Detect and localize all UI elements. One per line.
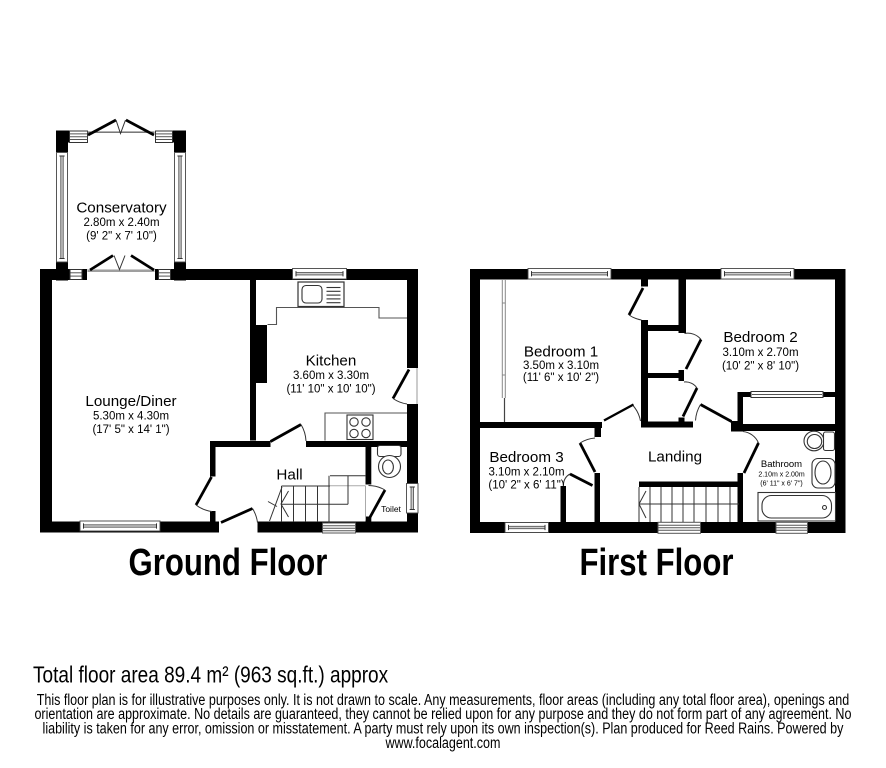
svg-text:5.30m x 4.30m: 5.30m x 4.30m [93,411,169,423]
svg-text:(9' 2" x 7' 10"): (9' 2" x 7' 10") [86,231,157,243]
svg-text:3.10m x 2.10m: 3.10m x 2.10m [488,467,564,479]
svg-text:3.10m x 2.70m: 3.10m x 2.70m [722,347,798,359]
svg-text:First Floor: First Floor [579,542,733,584]
svg-text:Landing: Landing [648,449,702,466]
svg-text:3.60m x 3.30m: 3.60m x 3.30m [293,370,369,382]
svg-text:Bedroom 2: Bedroom 2 [723,329,797,346]
svg-text:Conservatory: Conservatory [76,200,167,217]
svg-text:2.80m x 2.40m: 2.80m x 2.40m [83,217,159,229]
svg-text:Kitchen: Kitchen [306,353,357,370]
svg-text:3.50m x 3.10m: 3.50m x 3.10m [523,360,599,372]
svg-text:Total floor area 89.4 m² (963: Total floor area 89.4 m² (963 sq.ft.) ap… [33,663,388,688]
svg-text:Bathroom: Bathroom [761,459,802,470]
svg-text:Bedroom 3: Bedroom 3 [489,449,563,466]
svg-text:Toilet: Toilet [381,504,401,514]
svg-text:(11' 10" x 10' 10"): (11' 10" x 10' 10") [286,384,375,396]
svg-text:Hall: Hall [276,467,302,484]
svg-text:Lounge/Diner: Lounge/Diner [85,393,176,410]
svg-text:2.10m x 2.00m: 2.10m x 2.00m [758,472,804,479]
svg-text:(10' 2" x 8' 10"): (10' 2" x 8' 10") [722,361,799,373]
svg-text:(11' 6" x 10' 2"): (11' 6" x 10' 2") [523,372,599,384]
svg-text:Ground Floor: Ground Floor [128,542,327,584]
svg-text:Bedroom 1: Bedroom 1 [524,344,598,361]
svg-text:(10' 2" x 6' 11"): (10' 2" x 6' 11") [488,480,564,492]
svg-text:(6' 11" x 6' 7"): (6' 11" x 6' 7") [760,481,803,488]
svg-text:(17' 5" x 14' 1"): (17' 5" x 14' 1") [92,424,169,436]
svg-text:www.focalagent.com: www.focalagent.com [385,734,501,751]
